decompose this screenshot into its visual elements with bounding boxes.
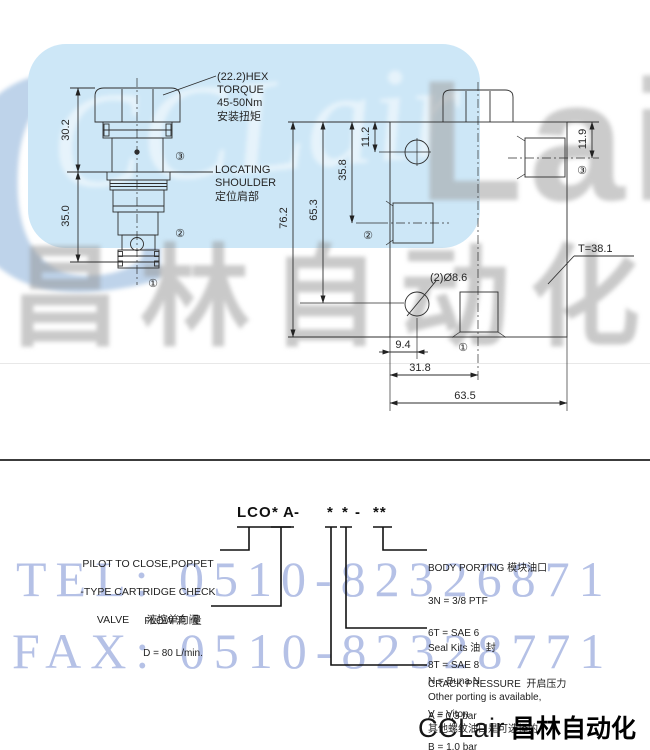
flow-line: FLOW 流 量 — [136, 617, 210, 628]
shoulder-note-line: SHOULDER — [215, 177, 276, 189]
dim-label-35-0: 35.0 — [60, 205, 72, 226]
seal-kits-line: Seal Kits 油 封 — [428, 643, 496, 654]
hex-note-line: 45-50Nm — [217, 97, 262, 109]
body-porting-line: BODY PORTING 模块油口 — [428, 564, 608, 575]
dim-label-30-2: 30.2 — [60, 119, 72, 140]
footer-brand-chinese: 昌林自动化 — [511, 715, 636, 743]
model-code-suffix: ** — [373, 504, 387, 521]
port-marker-2: ② — [363, 230, 373, 242]
catalog-page: C CCLair Lair 昌林自动化 TEL: 0510-82326871 F… — [0, 0, 650, 750]
model-code-star-1: * — [272, 504, 279, 521]
dim-label-76-2: 76.2 — [278, 207, 290, 228]
crack-pressure-line: CRACK PRESSURE 开启压力 — [428, 680, 566, 691]
model-code-dash-1: - — [294, 504, 300, 521]
port-marker-1: ① — [148, 278, 158, 290]
flow-label: FLOW 流 量 D = 80 L/min. — [136, 596, 210, 680]
model-code-star-3: * — [342, 504, 349, 521]
dim-label-9-4: 9.4 — [395, 339, 410, 351]
dim-label-63-5: 63.5 — [454, 390, 475, 402]
hex-note-line: 安装扭矩 — [217, 109, 261, 123]
model-code-star-2: * — [327, 504, 334, 521]
dim-label-11-9: 11.9 — [577, 129, 589, 150]
hole-note: (2)Ø8.6 — [430, 272, 467, 284]
valve-description-line: PILOT TO CLOSE,POPPET — [76, 560, 220, 569]
port-marker-1: ① — [458, 342, 468, 354]
dim-label-65-3: 65.3 — [308, 199, 320, 220]
technical-drawing: (22.2)HEX TORQUE 45-50Nm 安装扭矩 LOCATING S… — [0, 0, 650, 460]
model-code-dash-2: - — [355, 504, 361, 521]
hex-note-line: (22.2)HEX — [217, 71, 269, 83]
cartridge-view — [67, 76, 216, 285]
hex-note-line: TORQUE — [217, 84, 264, 96]
dim-label-11-2: 11.2 — [360, 127, 372, 148]
section-divider — [0, 459, 650, 461]
port-marker-3: ③ — [175, 151, 185, 163]
port-marker-3: ③ — [577, 165, 587, 177]
port-marker-2: ② — [175, 228, 185, 240]
dim-label-31-8: 31.8 — [409, 362, 430, 374]
flow-line: D = 80 L/min. — [136, 649, 210, 660]
thickness-note: T=38.1 — [578, 243, 613, 255]
shoulder-note-line: 定位肩部 — [215, 189, 259, 203]
dim-label-35-8: 35.8 — [337, 159, 349, 180]
footer-brand-latin: CCLair — [418, 713, 505, 743]
body-porting-line: 3N = 3/8 PTF — [428, 597, 608, 608]
footer-brand: CCLair昌林自动化 — [418, 709, 636, 745]
model-code-prefix: LCO — [237, 504, 272, 521]
shoulder-note-line: LOCATING — [215, 164, 270, 176]
